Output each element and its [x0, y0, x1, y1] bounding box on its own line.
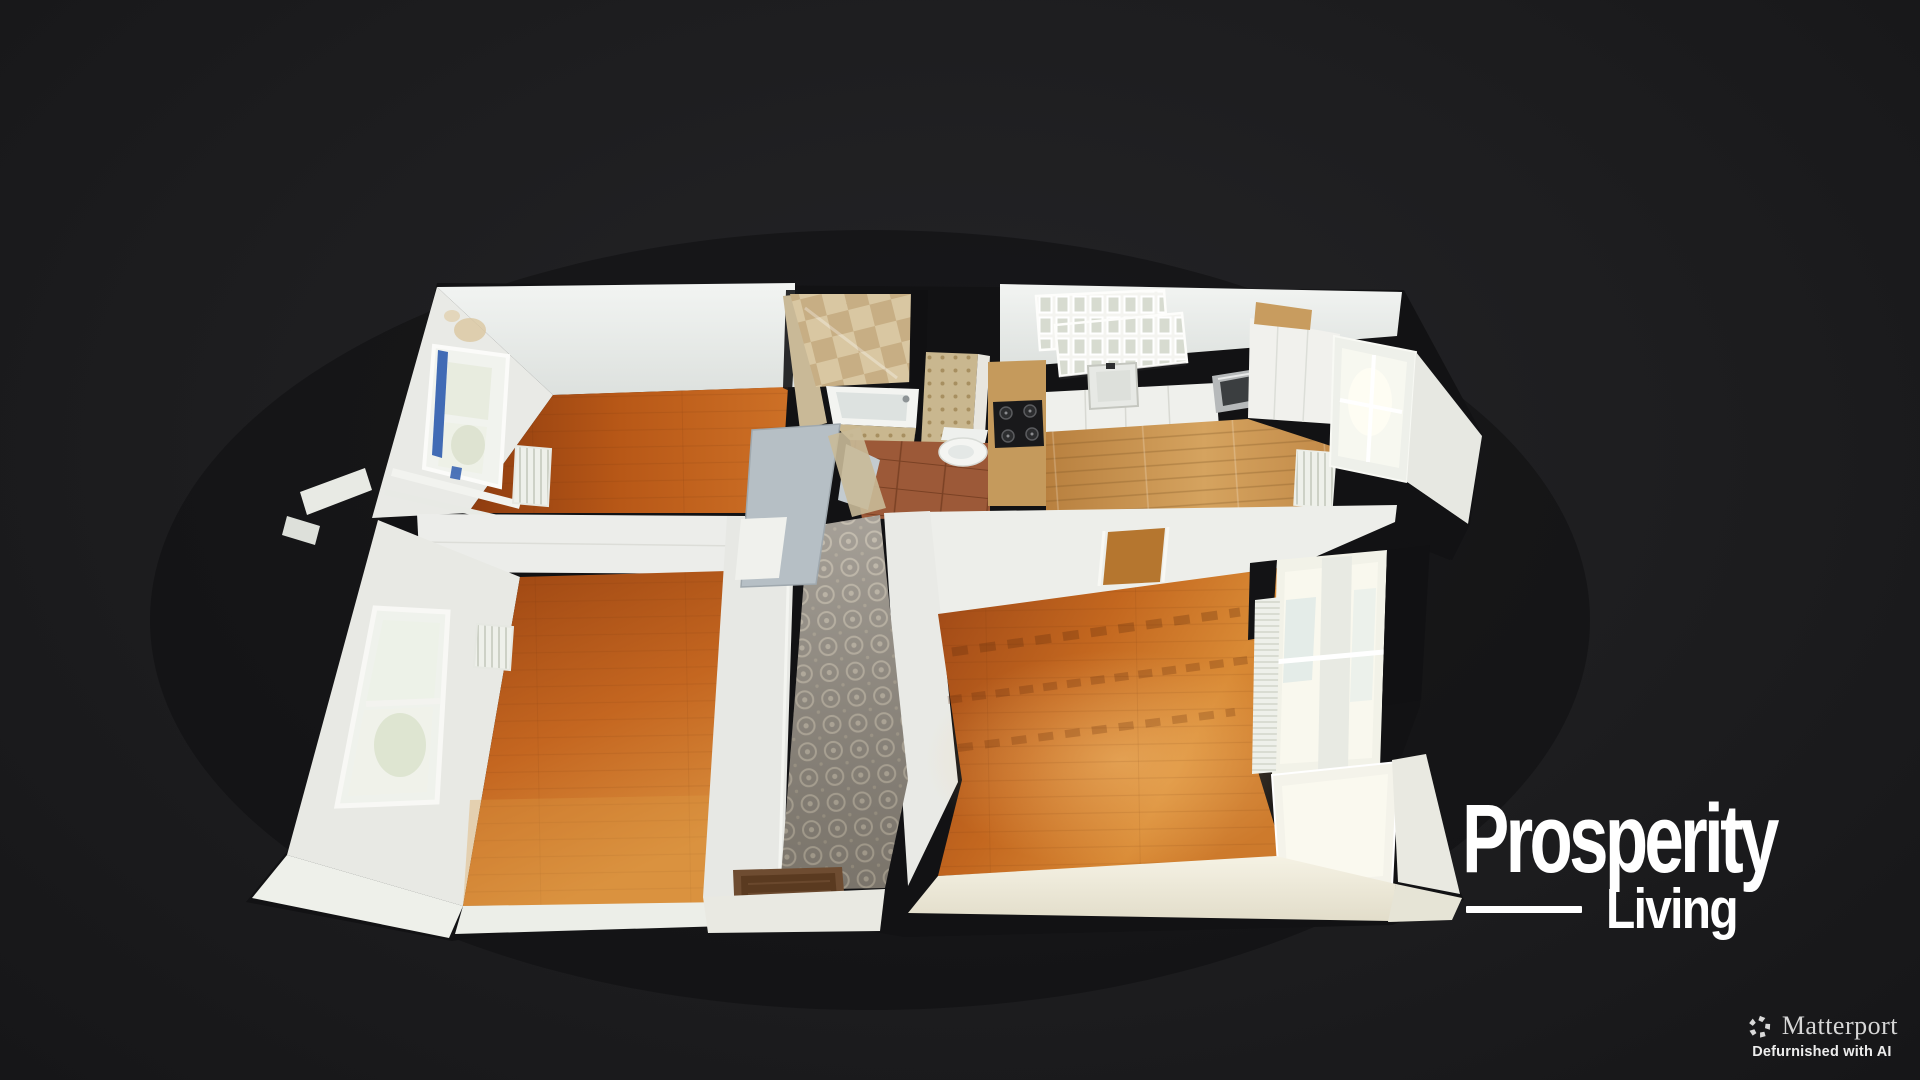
- bedroom1-window-glass-upper: [444, 362, 492, 420]
- door-frame-white: [735, 517, 787, 580]
- window-haze: [374, 713, 426, 777]
- defurnished-tagline: Defurnished with AI: [1746, 1044, 1898, 1060]
- logo-line2: Living: [1606, 881, 1737, 938]
- sky-reflection: [1283, 597, 1316, 683]
- bedroom1-window-blue-trim: [450, 466, 462, 480]
- bedroom2-floor-pine-patch: [463, 795, 727, 906]
- doorway-threshold-wood: [1103, 528, 1165, 585]
- bathtub-faucet: [903, 396, 910, 403]
- gas-hob: [993, 400, 1044, 448]
- matterport-wordmark: Matterport: [1782, 1011, 1898, 1041]
- sink-tap: [1106, 363, 1115, 369]
- kitchen-floor-planks: [1046, 419, 1334, 519]
- bathtub-basin: [836, 392, 908, 421]
- gas-hob-top: [993, 400, 1044, 448]
- wall-stain: [444, 310, 460, 322]
- sky-reflection: [1350, 588, 1376, 702]
- logo-line1: Prosperity: [1462, 790, 1776, 887]
- logo-underline: [1466, 906, 1582, 913]
- toilet-seat: [948, 445, 974, 459]
- matterport-pinwheel-icon: [1746, 1013, 1773, 1040]
- window-shutter-slats: [1252, 597, 1280, 774]
- bedroom1-radiator: [513, 446, 551, 506]
- room-bedroom-top-left: [372, 283, 798, 522]
- kitchen-sink: [1088, 363, 1138, 409]
- bedroom2-window-mullion: [366, 701, 440, 704]
- kitchen-window: [1330, 336, 1416, 482]
- toilet: [939, 427, 988, 466]
- bedroom2-radiator: [474, 624, 513, 670]
- window-haze: [451, 425, 485, 465]
- matterport-attribution: Matterport Defurnished with AI: [1746, 1011, 1898, 1060]
- wall-stain: [454, 318, 486, 342]
- kitchen-right-cabinets: [1248, 318, 1340, 424]
- prosperity-living-logo: Prosperity Living: [1462, 790, 1892, 938]
- bay-corner-post: [1318, 556, 1352, 772]
